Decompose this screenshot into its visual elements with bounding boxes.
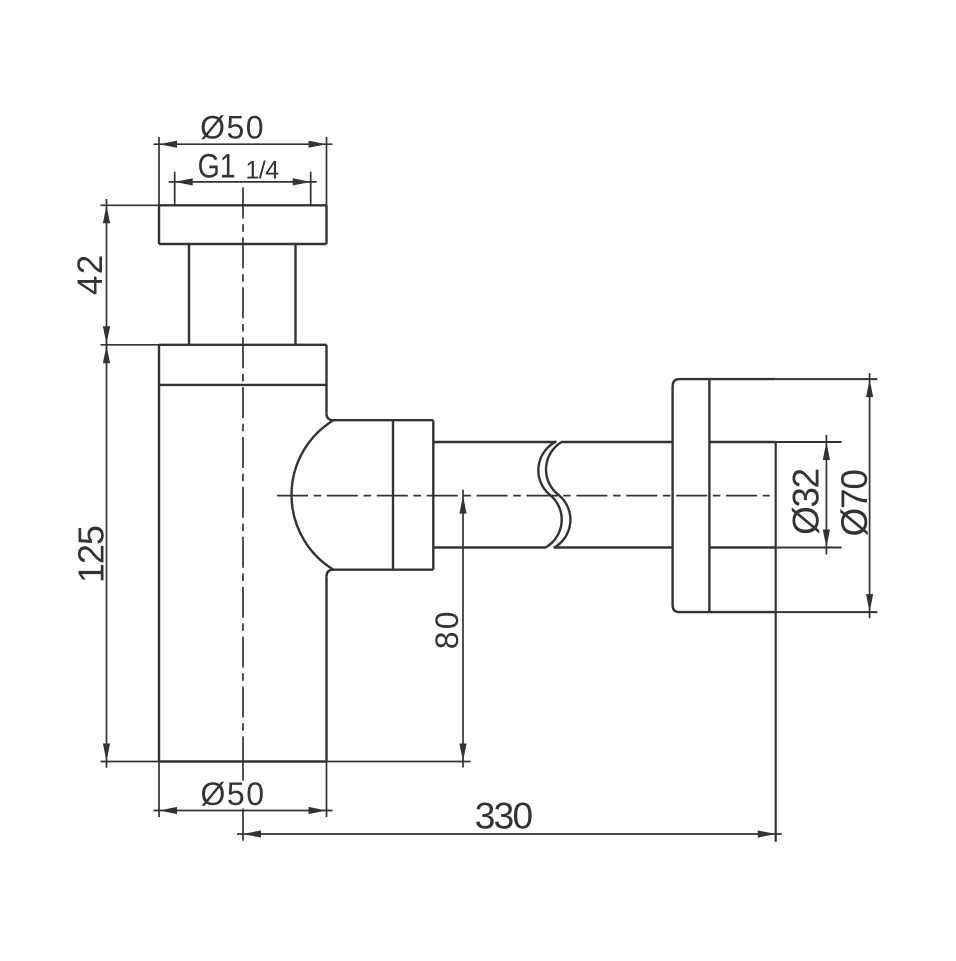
svg-text:80: 80 <box>429 609 465 649</box>
svg-text:Ø50: Ø50 <box>200 109 265 145</box>
svg-text:G1: G1 <box>198 147 236 185</box>
svg-text:Ø70: Ø70 <box>834 470 875 537</box>
svg-text:Ø50: Ø50 <box>201 776 266 812</box>
svg-text:Ø32: Ø32 <box>785 469 826 534</box>
svg-text:125: 125 <box>70 526 111 583</box>
svg-text:330: 330 <box>475 795 533 836</box>
svg-text:42: 42 <box>71 254 110 295</box>
svg-text:1/4: 1/4 <box>245 156 279 184</box>
